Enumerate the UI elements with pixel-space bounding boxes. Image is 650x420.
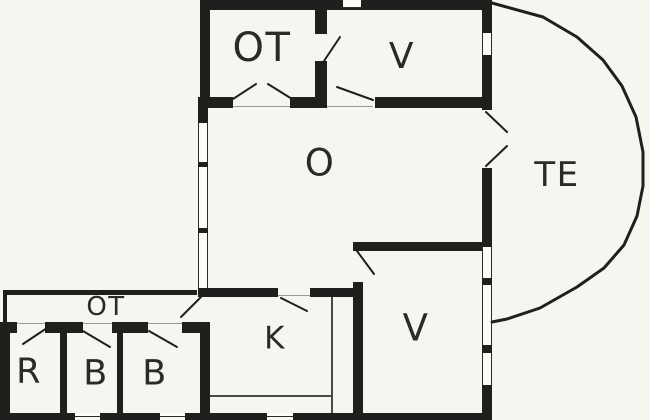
wall-hall-bottom-c [112,322,148,333]
threshold-b2-door [148,323,182,324]
wall-right-mullion-2 [482,345,492,353]
wall-bottom-a [0,413,75,420]
wall-vb-left-lower [353,282,363,420]
threshold-ot-double-door [233,106,290,107]
window-o-left-1 [198,123,208,162]
threshold-v-o-door [327,106,373,107]
window-bottom-b1 [75,413,100,417]
room-label-v-bottom: V [403,310,430,347]
window-vb-right-1 [482,247,492,278]
window-bottom-k [267,413,293,417]
window-vb-right-3 [482,353,492,385]
wall-hall-bottom-b [45,322,83,333]
room-label-b1: B [83,357,109,392]
wall-right-mullion-1 [482,278,492,285]
wall-mid-center [290,97,327,108]
door-swing-b1 [83,331,110,347]
wall-k-top-left [198,288,278,297]
room-label-ot-top: OT [233,28,292,68]
threshold-r-door [17,323,45,324]
door-swing-terrace-top [486,112,507,132]
window-bottom-b2 [160,413,185,417]
wall-otv-divider-upper [315,0,327,34]
wall-bottom-d [293,413,492,420]
room-label-b2: B [142,357,168,392]
room-label-te: TE [534,158,579,192]
wall-divider-r-b [60,333,67,413]
wall-k-left [200,322,210,420]
door-swing-ot-double-right [268,84,292,99]
window-right-vtop [482,33,492,55]
door-swing-terrace-bottom [486,146,507,166]
wall-bottom-c [185,413,267,420]
wall-mid-right [375,97,492,108]
room-label-ot-hall: OT [86,294,125,320]
kitchen-counter-line-horizontal [210,395,333,397]
window-o-left-2 [198,167,208,228]
threshold-b1-door [83,323,112,324]
wall-bottom-b [100,413,160,420]
door-swing-b2 [149,331,177,347]
wall-divider-b-b [117,333,123,413]
room-label-k: K [264,324,286,355]
door-swing-hall-k [181,297,201,317]
floor-plan: OT V O TE OT R B B K V [0,0,650,420]
wall-right-c [482,168,492,247]
wall-right-a [482,0,492,33]
wall-mid-left [200,97,233,108]
door-swing-ot-v [324,37,340,61]
window-vb-right-2 [482,285,492,345]
wall-ot-top-left [200,0,210,108]
door-swing-v-o [337,87,373,100]
door-swing-v-bottom [357,251,374,274]
wall-vb-left-upper [353,242,363,251]
door-swing-ot-double-left [233,84,256,99]
wall-left-exterior [0,322,10,420]
window-v-top [343,0,361,8]
room-label-r: R [16,355,42,390]
room-label-o: O [305,145,336,182]
door-swing-k [281,298,307,311]
threshold-k-door [278,295,310,296]
window-o-left-3 [198,233,208,288]
wall-otv-divider-lower [315,61,327,97]
wall-right-b [482,55,492,110]
wall-vb-top [353,242,492,251]
room-label-v-top: V [389,39,415,75]
